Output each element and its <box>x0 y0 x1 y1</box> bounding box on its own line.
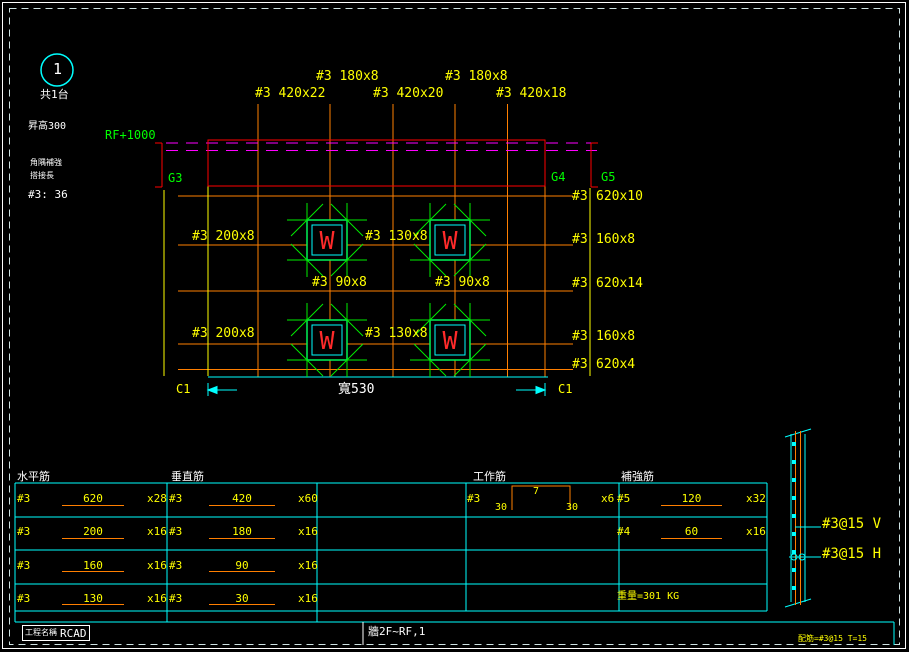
right-bar-size: #3 <box>572 330 588 343</box>
right-bar-value: 160x8 <box>596 233 635 246</box>
right-bar-size: #3 <box>572 277 588 290</box>
section-horizontal-bar-label: #3@15 H <box>822 547 881 561</box>
note-lap-label: 搭接長 <box>30 172 54 180</box>
table-cell-size: #3 <box>169 493 182 504</box>
work-bar-top-dim: 7 <box>533 487 539 497</box>
table-cell-length: 200 <box>62 526 124 537</box>
note-level: RF+1000 <box>105 129 156 141</box>
table-cell-count: x16 <box>147 560 167 571</box>
table-cell-size: #3 <box>169 560 182 571</box>
width-dimension-text: 寬530 <box>338 383 374 396</box>
window-mark: W <box>430 326 470 355</box>
horiz-bar-label: #3 200x8 <box>192 230 255 243</box>
table-cell-count: x28 <box>147 493 167 504</box>
sheet-name: 牆2F~RF,1 <box>368 626 425 637</box>
column-mark-left: C1 <box>176 383 190 395</box>
note-corner: 角隅補強 <box>30 159 62 167</box>
top-bar-label: #3 180x8 <box>445 70 508 83</box>
work-bar-shape <box>512 486 570 510</box>
column-mark-right: C1 <box>558 383 572 395</box>
plan-horizontal-bars <box>178 196 573 370</box>
right-bar-size: #3 <box>572 233 588 246</box>
table-cell-size: #3 <box>169 526 182 537</box>
top-bar-label: #3 180x8 <box>316 70 379 83</box>
table-cell-length: 180 <box>209 526 275 537</box>
table-header-horizontal: 水平筋 <box>17 471 50 482</box>
window-mark: W <box>307 226 347 255</box>
girder-g5: G5 <box>601 171 615 183</box>
right-bar-value: 620x10 <box>596 190 643 203</box>
table-cell-size: #3 <box>17 526 30 537</box>
window-mark: W <box>307 326 347 355</box>
table-cell-length: 420 <box>209 493 275 504</box>
horiz-bar-label: #3 130x8 <box>365 230 428 243</box>
table-cell-count: x16 <box>147 593 167 604</box>
table-header-extra: 補強筋 <box>621 471 654 482</box>
work-bar-count: x6 <box>601 493 614 504</box>
project-name-label: 工程名稱 <box>25 629 57 637</box>
work-bar-size: #3 <box>467 493 480 504</box>
right-bar-size: #3 <box>572 358 588 371</box>
table-cell-length: 120 <box>661 493 722 504</box>
callout-number: 1 <box>53 62 62 77</box>
table-cell-size: #3 <box>17 493 30 504</box>
table-cell-size: #3 <box>169 593 182 604</box>
corner-bar-label: #3 90x8 <box>312 276 367 289</box>
right-bar-value: 620x4 <box>596 358 635 371</box>
work-bar-left-dim: 30 <box>495 503 507 513</box>
project-name-box: 工程名稱 RCAD <box>22 625 90 641</box>
wall-edge-lines <box>164 186 590 376</box>
table-cell-length: 90 <box>209 560 275 571</box>
right-bar-size: #3 <box>572 190 588 203</box>
horiz-bar-label: #3 200x8 <box>192 327 255 340</box>
table-cell-count: x16 <box>746 526 766 537</box>
slab-dashed-lines <box>166 143 597 151</box>
girder-g3: G3 <box>168 172 182 184</box>
table-cell-size: #3 <box>17 560 30 571</box>
section-vertical-bar-label: #3@15 V <box>822 517 881 531</box>
table-header-vertical: 垂直筋 <box>171 471 204 482</box>
table-cell-count: x16 <box>298 560 318 571</box>
table-cell-size: #3 <box>17 593 30 604</box>
table-cell-length: 60 <box>661 526 722 537</box>
top-bar-label: #3 420x22 <box>255 87 325 100</box>
title-bar-lines <box>15 622 894 645</box>
wall-cross-section <box>785 429 821 607</box>
window-mark: W <box>430 226 470 255</box>
table-cell-size: #4 <box>617 526 630 537</box>
project-name-value: RCAD <box>60 628 87 639</box>
note-lap-value: #3: 36 <box>28 189 68 200</box>
width-dimension <box>208 383 545 396</box>
work-bar-right-dim: 30 <box>566 503 578 513</box>
table-cell-count: x16 <box>298 526 318 537</box>
table-cell-count: x60 <box>298 493 318 504</box>
horiz-bar-label: #3 130x8 <box>365 327 428 340</box>
table-cell-size: #5 <box>617 493 630 504</box>
table-cell-length: 30 <box>209 593 275 604</box>
drawing-note: 配筋=#3@15 T=15 <box>798 635 867 643</box>
rcad-wall-rebar-screen[interactable]: 1 共1台 昇高300 RF+1000 角隅補強 搭接長 #3: 36 G3 G… <box>0 0 909 652</box>
table-header-work: 工作筋 <box>473 471 506 482</box>
right-bar-value: 620x14 <box>596 277 643 290</box>
table-cell-length: 160 <box>62 560 124 571</box>
callout-count: 共1台 <box>40 89 69 100</box>
table-cell-length: 620 <box>62 493 124 504</box>
top-bar-label: #3 420x20 <box>373 87 443 100</box>
corner-bar-label: #3 90x8 <box>435 276 490 289</box>
girder-g4: G4 <box>551 171 565 183</box>
right-bar-value: 160x8 <box>596 330 635 343</box>
table-cell-length: 130 <box>62 593 124 604</box>
note-raise: 昇高300 <box>28 122 66 132</box>
table-cell-count: x16 <box>147 526 167 537</box>
beam-outline <box>155 140 598 187</box>
total-weight: 重量=301 KG <box>617 592 679 602</box>
table-cell-count: x32 <box>746 493 766 504</box>
table-cell-count: x16 <box>298 593 318 604</box>
top-bar-label: #3 420x18 <box>496 87 566 100</box>
